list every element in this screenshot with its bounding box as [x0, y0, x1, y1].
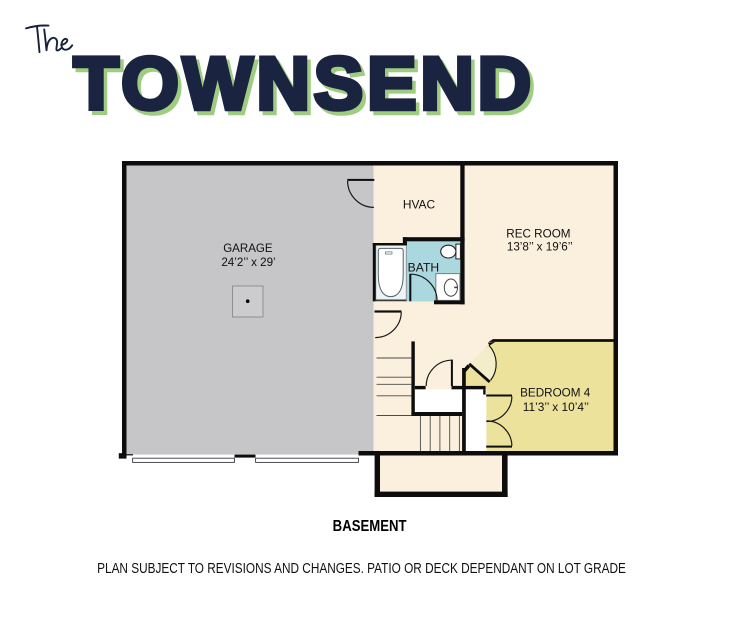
svg-text:13’8’’ x 19’6’’: 13’8’’ x 19’6’’	[507, 240, 573, 254]
svg-text:GARAGE: GARAGE	[223, 241, 272, 255]
svg-text:HVAC: HVAC	[403, 199, 435, 212]
svg-text:24’2’’ x 29’: 24’2’’ x 29’	[221, 255, 275, 269]
svg-text:BATH: BATH	[408, 262, 439, 275]
svg-text:11’3’’ x 10’4’’: 11’3’’ x 10’4’’	[523, 400, 589, 414]
svg-text:REC ROOM: REC ROOM	[506, 227, 570, 241]
svg-text:BEDROOM 4: BEDROOM 4	[520, 386, 590, 400]
